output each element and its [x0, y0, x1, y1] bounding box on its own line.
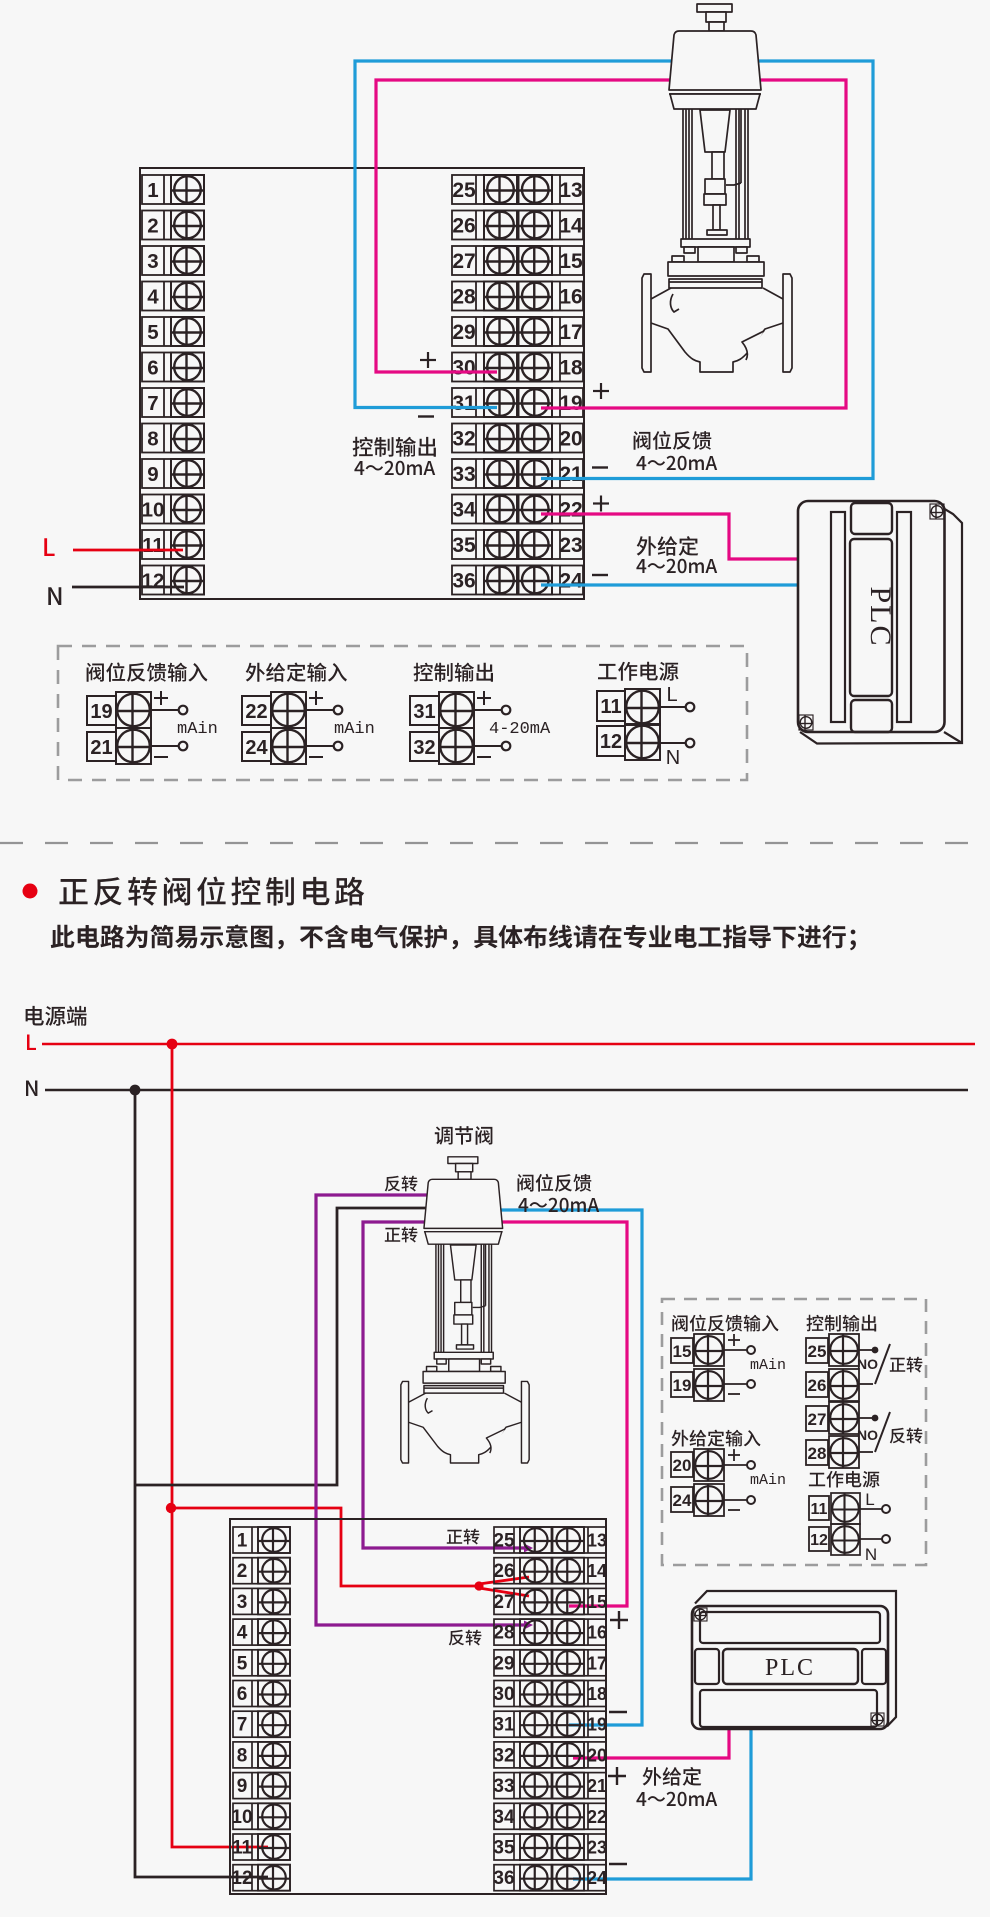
svg-text:14: 14: [559, 215, 583, 238]
svg-text:18: 18: [559, 357, 583, 380]
svg-text:mAin: mAin: [334, 720, 375, 739]
svg-text:25: 25: [452, 179, 476, 202]
svg-text:24: 24: [245, 737, 268, 759]
svg-text:25: 25: [808, 1342, 827, 1361]
svg-text:3: 3: [147, 250, 158, 273]
svg-text:2: 2: [147, 215, 158, 238]
svg-text:32: 32: [452, 428, 475, 451]
svg-text:35: 35: [452, 534, 476, 557]
svg-text:26: 26: [452, 215, 475, 238]
svg-text:24: 24: [559, 570, 583, 593]
svg-text:10: 10: [142, 499, 165, 522]
svg-text:L: L: [865, 1490, 874, 1509]
svg-text:8: 8: [237, 1745, 248, 1766]
svg-text:23: 23: [587, 1838, 607, 1858]
svg-text:N: N: [666, 747, 680, 769]
svg-text:16: 16: [559, 286, 582, 309]
svg-text:22: 22: [559, 499, 582, 522]
svg-text:19: 19: [587, 1715, 607, 1735]
svg-text:11: 11: [142, 534, 164, 557]
svg-text:18: 18: [587, 1684, 607, 1704]
svg-text:6: 6: [147, 357, 158, 380]
svg-text:4: 4: [147, 286, 159, 309]
svg-text:20: 20: [587, 1745, 607, 1765]
svg-text:23: 23: [559, 534, 582, 557]
svg-text:19: 19: [559, 392, 582, 415]
svg-text:28: 28: [493, 1623, 514, 1644]
svg-text:12: 12: [810, 1532, 828, 1549]
svg-text:11: 11: [232, 1838, 253, 1859]
svg-text:30: 30: [452, 357, 475, 380]
svg-text:16: 16: [587, 1623, 607, 1643]
svg-text:21: 21: [90, 737, 112, 759]
svg-text:15: 15: [559, 250, 583, 273]
svg-text:27: 27: [808, 1410, 827, 1429]
svg-text:19: 19: [90, 701, 112, 723]
svg-text:22: 22: [587, 1807, 607, 1827]
svg-text:22: 22: [245, 701, 267, 723]
svg-text:4-20mA: 4-20mA: [489, 720, 551, 739]
svg-text:36: 36: [452, 570, 475, 593]
svg-text:32: 32: [493, 1745, 514, 1766]
svg-text:26: 26: [493, 1561, 514, 1582]
svg-text:20: 20: [559, 428, 582, 451]
svg-text:9: 9: [237, 1776, 248, 1797]
svg-text:19: 19: [673, 1376, 692, 1395]
svg-text:11: 11: [811, 1501, 828, 1518]
svg-text:30: 30: [493, 1684, 514, 1705]
svg-text:32: 32: [413, 737, 435, 759]
svg-text:13: 13: [587, 1531, 607, 1551]
svg-text:24: 24: [673, 1491, 692, 1510]
svg-text:28: 28: [808, 1444, 827, 1463]
svg-text:29: 29: [452, 321, 475, 344]
svg-text:20: 20: [673, 1456, 692, 1475]
svg-text:27: 27: [452, 250, 475, 273]
svg-text:PLC: PLC: [864, 586, 897, 647]
svg-text:14: 14: [587, 1561, 607, 1581]
svg-text:mAin: mAin: [177, 720, 218, 739]
svg-text:7: 7: [147, 392, 158, 415]
svg-text:PLC: PLC: [765, 1655, 815, 1681]
svg-text:3: 3: [237, 1592, 248, 1613]
svg-text:6: 6: [237, 1684, 248, 1705]
svg-text:17: 17: [559, 321, 582, 344]
svg-text:25: 25: [493, 1531, 515, 1552]
svg-text:10: 10: [231, 1807, 252, 1828]
svg-text:34: 34: [452, 499, 476, 522]
svg-text:mAin: mAin: [750, 1357, 786, 1374]
svg-text:12: 12: [600, 731, 622, 753]
svg-text:N: N: [865, 1545, 877, 1564]
svg-text:5: 5: [237, 1653, 248, 1674]
svg-text:31: 31: [452, 392, 476, 415]
svg-text:8: 8: [147, 428, 158, 451]
svg-text:NO: NO: [857, 1356, 878, 1372]
svg-text:24: 24: [587, 1868, 607, 1888]
svg-text:12: 12: [231, 1868, 252, 1889]
svg-text:15: 15: [673, 1342, 692, 1361]
svg-text:5: 5: [147, 321, 158, 344]
svg-text:NO: NO: [857, 1427, 878, 1443]
svg-text:11: 11: [600, 696, 621, 718]
svg-text:35: 35: [493, 1838, 515, 1859]
svg-text:21: 21: [559, 463, 583, 486]
svg-text:26: 26: [808, 1376, 827, 1395]
svg-text:31: 31: [493, 1715, 515, 1736]
svg-text:1: 1: [237, 1531, 248, 1552]
svg-text:mAin: mAin: [750, 1472, 786, 1489]
svg-text:4: 4: [237, 1623, 248, 1644]
svg-text:17: 17: [587, 1653, 607, 1673]
svg-text:2: 2: [237, 1561, 248, 1582]
svg-text:7: 7: [237, 1715, 248, 1736]
svg-text:33: 33: [493, 1776, 514, 1797]
svg-text:1: 1: [147, 179, 158, 202]
svg-text:29: 29: [493, 1653, 514, 1674]
svg-text:21: 21: [587, 1776, 607, 1796]
svg-text:15: 15: [587, 1592, 607, 1612]
svg-text:12: 12: [142, 570, 165, 593]
svg-text:33: 33: [452, 463, 475, 486]
svg-text:27: 27: [493, 1592, 514, 1613]
svg-text:13: 13: [559, 179, 582, 202]
svg-text:28: 28: [452, 286, 476, 309]
svg-text:L: L: [666, 684, 677, 706]
svg-text:36: 36: [493, 1868, 514, 1889]
svg-text:9: 9: [147, 463, 158, 486]
svg-text:34: 34: [493, 1807, 515, 1828]
svg-text:31: 31: [413, 701, 435, 723]
